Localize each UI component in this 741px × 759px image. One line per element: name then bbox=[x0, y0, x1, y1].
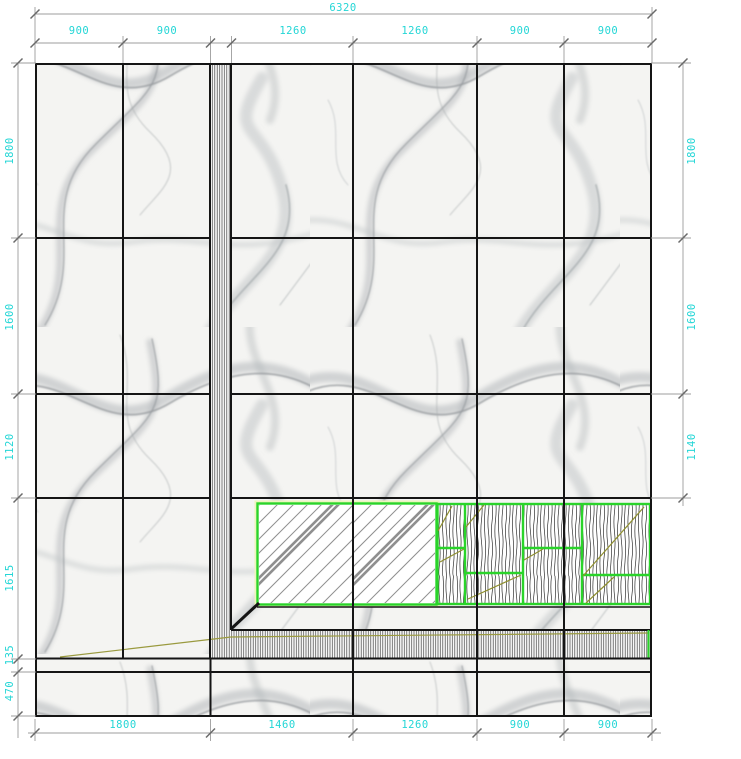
dim-label-overall-width: 6320 bbox=[329, 3, 356, 14]
dim-label-bottom: 900 bbox=[510, 720, 530, 731]
dim-label-bottom: 1460 bbox=[268, 720, 295, 731]
dim-label-left: 470 bbox=[5, 681, 16, 701]
dim-label-left: 1600 bbox=[5, 303, 16, 330]
dim-label-left: 135 bbox=[5, 645, 16, 665]
dim-label-right: 1800 bbox=[687, 137, 698, 164]
dim-label-right: 1140 bbox=[687, 433, 698, 460]
cad-elevation-drawing: 6320 900 900 1260 1260 900 900 1800 1600… bbox=[0, 0, 741, 759]
dim-label-top: 900 bbox=[157, 26, 177, 37]
dim-label-left: 1615 bbox=[5, 564, 16, 591]
dim-label-top: 1260 bbox=[279, 26, 306, 37]
dim-label-bottom: 900 bbox=[598, 720, 618, 731]
dim-label-right: 1600 bbox=[687, 303, 698, 330]
dim-label-bottom: 1260 bbox=[401, 720, 428, 731]
dim-label-top: 900 bbox=[69, 26, 89, 37]
dim-label-left: 1800 bbox=[5, 137, 16, 164]
dim-label-left: 1120 bbox=[5, 433, 16, 460]
dim-label-bottom: 1800 bbox=[109, 720, 136, 731]
marble-wall bbox=[35, 63, 652, 717]
dim-label-top: 1260 bbox=[401, 26, 428, 37]
dim-label-top: 900 bbox=[510, 26, 530, 37]
wood-panels bbox=[437, 504, 651, 604]
drawing-linework bbox=[0, 0, 741, 759]
dim-label-top: 900 bbox=[598, 26, 618, 37]
wood-grain-hatch bbox=[437, 504, 651, 604]
